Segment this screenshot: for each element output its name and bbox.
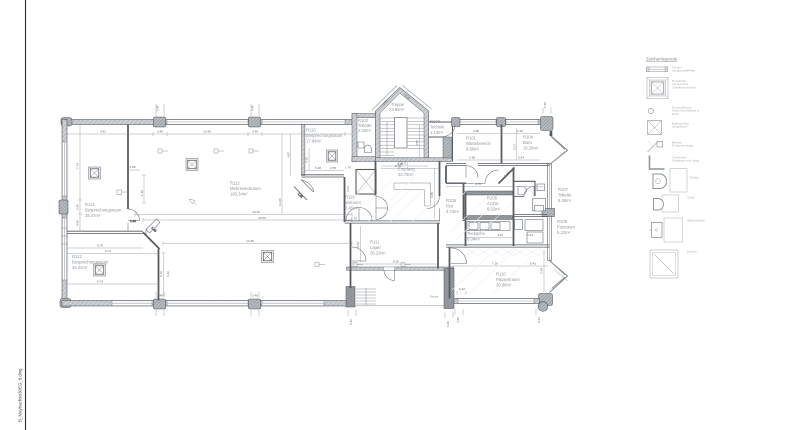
svg-text:5.22m²: 5.22m² <box>557 230 571 235</box>
svg-text:2.40: 2.40 <box>517 129 523 133</box>
svg-text:7.74: 7.74 <box>76 163 80 169</box>
svg-text:2.88: 2.88 <box>130 165 136 169</box>
svg-text:5.10: 5.10 <box>159 271 163 277</box>
svg-text:2.49: 2.49 <box>540 268 544 274</box>
svg-text:30.78m²: 30.78m² <box>398 172 414 177</box>
svg-text:Deckenmontage: Deckenmontage <box>672 144 693 148</box>
svg-text:3.17: 3.17 <box>512 144 516 150</box>
svg-text:Empfang: Empfang <box>398 167 415 172</box>
svg-text:3.41: 3.41 <box>537 317 541 323</box>
svg-text:R109: R109 <box>557 219 568 224</box>
svg-text:35.47m²: 35.47m² <box>85 213 101 218</box>
svg-text:6.74: 6.74 <box>105 249 111 253</box>
svg-text:Höhe: Höhe <box>672 112 679 116</box>
svg-text:Waschbecken: Waschbecken <box>687 219 705 223</box>
svg-text:3.40: 3.40 <box>252 130 258 134</box>
svg-text:0.40: 0.40 <box>543 102 547 108</box>
svg-text:2.44: 2.44 <box>518 156 524 160</box>
svg-text:R107: R107 <box>558 187 569 192</box>
svg-text:11.63: 11.63 <box>278 198 282 206</box>
svg-text:Besprechungsraum: Besprechungsraum <box>306 133 343 138</box>
svg-text:R115: R115 <box>306 128 316 133</box>
svg-text:3.40: 3.40 <box>456 317 460 323</box>
svg-text:30.38m²: 30.38m² <box>496 283 512 288</box>
svg-text:R113: R113 <box>72 254 82 259</box>
svg-text:4.57: 4.57 <box>415 140 419 146</box>
svg-text:R104: R104 <box>523 135 534 140</box>
svg-text:R103: R103 <box>430 119 441 124</box>
svg-text:17.84m²: 17.84m² <box>306 139 322 144</box>
svg-text:R101: R101 <box>466 136 477 141</box>
svg-text:15.26m²: 15.26m² <box>523 146 539 151</box>
svg-text:Besprechungsraum: Besprechungsraum <box>72 260 109 265</box>
svg-text:Dusche: Dusche <box>687 250 697 254</box>
svg-text:8.36: 8.36 <box>393 260 399 264</box>
svg-text:1.13m²: 1.13m² <box>430 130 444 135</box>
svg-text:13.94m²: 13.94m² <box>389 107 405 112</box>
svg-text:4.10: 4.10 <box>305 157 309 163</box>
svg-text:Flur: Flur <box>446 204 454 209</box>
svg-text:Urinal: Urinal <box>687 196 695 200</box>
svg-text:15.35: 15.35 <box>258 216 266 220</box>
svg-text:R105: R105 <box>446 198 457 203</box>
svg-text:5.48: 5.48 <box>315 166 321 170</box>
svg-text:R111: R111 <box>370 240 380 245</box>
svg-text:Teeküche: Teeküche <box>467 231 486 236</box>
svg-text:1.76: 1.76 <box>345 166 351 170</box>
svg-text:Mehrzweckraum: Mehrzweckraum <box>230 186 261 191</box>
svg-text:6.73: 6.73 <box>97 280 103 284</box>
svg-text:Garderobe mit Längs: Garderobe mit Längs <box>672 159 700 163</box>
svg-text:B_Maybachstr30EG_d.dwg: B_Maybachstr30EG_d.dwg <box>18 368 23 422</box>
svg-text:4.57: 4.57 <box>286 152 290 158</box>
svg-text:4.74m²: 4.74m² <box>446 209 460 214</box>
svg-text:6.10: 6.10 <box>166 271 170 277</box>
svg-text:R112: R112 <box>230 181 240 186</box>
svg-text:Archiv: Archiv <box>487 201 500 206</box>
svg-text:8.66m²: 8.66m² <box>466 147 480 152</box>
svg-text:R106: R106 <box>487 196 498 201</box>
svg-text:1.48: 1.48 <box>140 190 144 196</box>
svg-text:R114: R114 <box>85 202 95 207</box>
svg-text:Pausenraum: Pausenraum <box>496 277 520 282</box>
svg-text:4.40: 4.40 <box>76 220 80 226</box>
svg-text:5.36m²: 5.36m² <box>558 198 572 203</box>
svg-text:3.40: 3.40 <box>252 294 258 298</box>
svg-text:2.55: 2.55 <box>330 166 336 170</box>
svg-text:Besprechungsraum: Besprechungsraum <box>85 208 122 213</box>
svg-text:6.02m²: 6.02m² <box>487 207 501 212</box>
svg-text:B(01): B(01) <box>398 161 409 166</box>
svg-text:0.42: 0.42 <box>459 287 465 291</box>
svg-text:3.24: 3.24 <box>497 233 503 237</box>
svg-text:9.76: 9.76 <box>97 244 103 248</box>
svg-text:Toilette: Toilette <box>690 176 700 180</box>
svg-text:R110: R110 <box>496 272 506 277</box>
svg-text:0.41: 0.41 <box>530 262 536 266</box>
svg-text:3.40: 3.40 <box>157 130 163 134</box>
svg-text:14.38: 14.38 <box>246 239 254 243</box>
svg-text:Längsschnitt/Plan: Längsschnitt/Plan <box>672 69 695 73</box>
svg-text:2.02m²: 2.02m² <box>358 128 372 133</box>
svg-text:Zeichenlegende: Zeichenlegende <box>646 57 678 62</box>
svg-text:0.40: 0.40 <box>156 105 160 111</box>
svg-text:34.42m²: 34.42m² <box>72 265 88 270</box>
svg-text:3.78: 3.78 <box>356 242 360 248</box>
svg-text:0.40: 0.40 <box>349 319 353 325</box>
svg-text:7.18: 7.18 <box>492 262 498 266</box>
svg-text:0.40: 0.40 <box>446 321 450 327</box>
svg-text:Rampe: Rampe <box>430 295 439 299</box>
svg-text:6.04m²: 6.04m² <box>467 237 481 242</box>
svg-text:Technik: Technik <box>430 125 445 130</box>
svg-text:12.46: 12.46 <box>203 130 211 134</box>
svg-text:1.98: 1.98 <box>469 156 475 160</box>
svg-text:0.40: 0.40 <box>251 105 255 111</box>
svg-text:0.40: 0.40 <box>76 204 80 210</box>
svg-text:3.40: 3.40 <box>157 294 163 298</box>
svg-text:2.98: 2.98 <box>473 129 479 133</box>
svg-text:16.40: 16.40 <box>252 210 260 214</box>
svg-text:(Stahlbetonstütze): (Stahlbetonstütze) <box>672 85 695 89</box>
svg-text:Toilette: Toilette <box>558 193 572 198</box>
svg-text:Lager: Lager <box>370 245 381 250</box>
svg-text:Längsfläche: Längsfläche <box>672 125 688 129</box>
svg-text:0.44: 0.44 <box>527 233 533 237</box>
svg-text:1.76: 1.76 <box>351 217 357 221</box>
svg-text:1.10: 1.10 <box>130 219 136 223</box>
svg-text:2.01: 2.01 <box>346 186 350 192</box>
svg-text:Büro: Büro <box>523 140 533 145</box>
svg-text:3.45m²: 3.45m² <box>345 206 359 211</box>
svg-text:4.76: 4.76 <box>475 182 481 186</box>
svg-text:26.23m²: 26.23m² <box>370 251 386 256</box>
svg-text:4.61: 4.61 <box>100 130 106 134</box>
svg-text:Wartebereich: Wartebereich <box>466 141 491 146</box>
svg-text:Putzraum: Putzraum <box>557 225 575 230</box>
svg-text:183.34m²: 183.34m² <box>230 192 248 197</box>
svg-text:4.85: 4.85 <box>430 192 434 198</box>
svg-text:R116: R116 <box>345 195 355 200</box>
svg-text:Vorraum: Vorraum <box>345 200 361 205</box>
